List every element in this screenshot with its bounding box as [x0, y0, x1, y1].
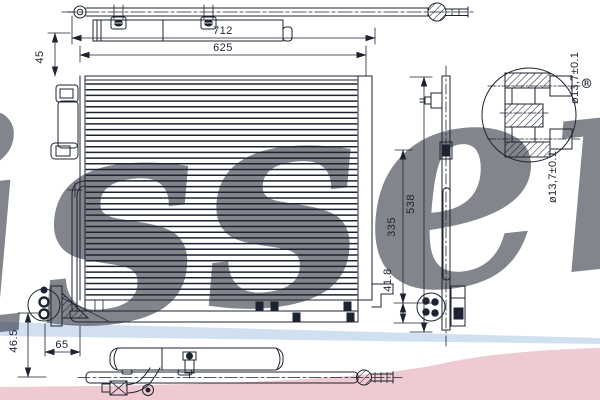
dim-port-top-diameter: ø13,7±0.1: [569, 52, 581, 104]
dim-port-bottom-diameter: ø13,7±0.1: [547, 151, 559, 203]
dim-core-width: 625: [213, 42, 233, 54]
dim-overall-height: 538: [405, 194, 417, 214]
nissens-watermark: Nissens ®: [0, 0, 600, 400]
dim-overall-width: 712: [213, 25, 233, 37]
top-right-fitting: [428, 3, 446, 21]
dim-bottom-offset: 46.5: [8, 329, 20, 352]
watermark-brand-text: Nissens: [0, 0, 600, 400]
dim-connector-offset: 65: [55, 339, 68, 351]
condenser-technical-drawing: Nissens ®: [0, 0, 600, 400]
dim-pipe-offset: 41.8: [382, 268, 394, 291]
registered-trademark-icon: ®: [580, 77, 593, 92]
drawing-canvas: Nissens ®: [0, 0, 600, 400]
pipe-clamp: [111, 17, 126, 29]
dim-top-offset: 45: [34, 50, 46, 63]
dim-lower-height: 335: [386, 217, 398, 237]
